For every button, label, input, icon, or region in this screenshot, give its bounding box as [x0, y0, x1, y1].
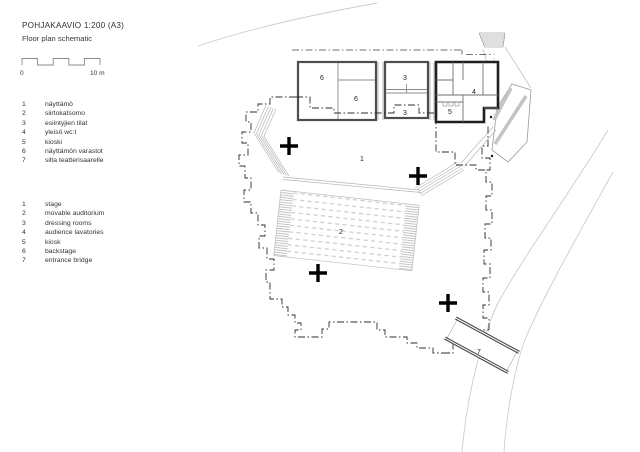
legend-num: 5	[22, 138, 45, 147]
legend-num: 1	[22, 100, 45, 109]
boundary-through-backstage	[296, 97, 389, 113]
roofline	[292, 50, 491, 55]
legend-num: 4	[22, 228, 45, 237]
contour-line	[462, 130, 608, 452]
survey-dot	[490, 116, 492, 118]
room-labels: 6 6 3 3 4 5 1 2 7	[320, 75, 481, 356]
legend-num: 4	[22, 128, 45, 137]
room-label-bridge: 7	[477, 349, 481, 356]
legend-label: näyttämö	[45, 100, 104, 109]
legend-english: 1stage 2movable auditorium 3dressing roo…	[22, 200, 104, 266]
legend-row: 4yleisö wc:t	[22, 128, 104, 137]
stage-plaza	[254, 105, 496, 196]
legend-row: 6näyttämön varastot	[22, 147, 104, 156]
scale-bar: 0 10 m	[20, 59, 105, 78]
legend-label: kiosk	[45, 238, 104, 247]
scale-end-label: 10 m	[90, 70, 105, 77]
legend-row: 7silta teatterisaarelle	[22, 156, 104, 165]
legend-label: audience lavatories	[45, 228, 104, 237]
legend-label: stage	[45, 200, 104, 209]
benchmark-cross	[439, 294, 457, 312]
legend-row: 6backstage	[22, 247, 104, 256]
legend-num: 7	[22, 156, 45, 165]
exterior-stairs	[479, 33, 505, 47]
legend-num: 7	[22, 256, 45, 265]
legend-num: 2	[22, 109, 45, 118]
room-label-backstage-left: 6	[320, 75, 324, 82]
legend-num: 6	[22, 147, 45, 156]
room-label-stage: 1	[360, 156, 364, 163]
dressing-rooms-block	[385, 62, 428, 118]
title-block: POHJAKAAVIO 1:200 (A3) Floor plan schema…	[22, 21, 124, 43]
legend-row: 1stage	[22, 200, 104, 209]
legend-label: kioski	[45, 138, 104, 147]
legend-num: 3	[22, 119, 45, 128]
boundary-east	[482, 126, 492, 330]
legend-num: 6	[22, 247, 45, 256]
room-label-backstage-right: 6	[354, 96, 358, 103]
auditorium-steps-right	[399, 204, 419, 271]
auditorium	[274, 190, 419, 271]
legend-finnish: 1näyttämö 2siirtokatsomo 3esiintyjien ti…	[22, 100, 104, 166]
legend-row: 1näyttämö	[22, 100, 104, 109]
legend-num: 5	[22, 238, 45, 247]
drawing-sheet: POHJAKAAVIO 1:200 (A3) Floor plan schema…	[0, 0, 640, 452]
scale-zero-label: 0	[20, 70, 24, 77]
boundary-bridge-crossing	[443, 330, 489, 353]
legend-num: 3	[22, 219, 45, 228]
boundary-east-inner	[427, 113, 486, 170]
corridor-gap	[378, 62, 383, 120]
legend-row: 2siirtokatsomo	[22, 109, 104, 118]
legend-num: 1	[22, 200, 45, 209]
legend-row: 3dressing rooms	[22, 219, 104, 228]
hillside-path	[483, 47, 531, 118]
survey-dot	[491, 155, 493, 157]
benchmark-cross	[309, 264, 327, 282]
legend-label: näyttämön varastot	[45, 147, 104, 156]
legend-label: siirtokatsomo	[45, 109, 104, 118]
corridor-gap	[430, 62, 434, 120]
room-label-dressing-bottom: 3	[403, 110, 407, 117]
ramp-structure	[490, 84, 531, 162]
room-label-lavatories: 4	[472, 89, 476, 96]
legend-num: 2	[22, 209, 45, 218]
legend-row: 4audience lavatories	[22, 228, 104, 237]
legend-label: dressing rooms	[45, 219, 104, 228]
boundary-west-south	[239, 97, 443, 353]
legend-label: entrance bridge	[45, 256, 104, 265]
room-label-dressing-top: 3	[403, 75, 407, 82]
contour-line	[504, 172, 613, 452]
stairs-fan-left	[254, 105, 289, 176]
entrance-bridge	[444, 317, 519, 373]
benchmark-cross	[280, 137, 298, 155]
room-label-kiosk: 5	[448, 109, 452, 116]
legend-row: 5kioski	[22, 138, 104, 147]
legend-row: 3esiintyjien tilat	[22, 119, 104, 128]
kiosk-lavatories-block	[436, 62, 498, 122]
legend-row: 5kiosk	[22, 238, 104, 247]
benchmark-crosses	[280, 137, 457, 312]
site-boundary	[239, 97, 492, 353]
room-label-auditorium: 2	[339, 229, 343, 236]
legend-row: 2movable auditorium	[22, 209, 104, 218]
legend-label: backstage	[45, 247, 104, 256]
boundary-notch-dressing	[389, 105, 427, 113]
legend-label: movable auditorium	[45, 209, 104, 218]
legend-label: esiintyjien tilat	[45, 119, 104, 128]
backstage-block	[298, 62, 376, 120]
drawing-subtitle: Floor plan schematic	[22, 34, 124, 43]
stairs-fan-right	[415, 162, 464, 196]
legend-row: 7entrance bridge	[22, 256, 104, 265]
drawing-title: POHJAKAAVIO 1:200 (A3)	[22, 21, 124, 30]
auditorium-seating	[287, 191, 407, 269]
terrain-contours	[198, 3, 613, 452]
contour-line	[198, 3, 377, 46]
plaza-edge-right	[461, 127, 496, 166]
plaza-edge-bottom	[283, 177, 421, 193]
auditorium-steps-left	[274, 190, 294, 257]
benchmark-cross	[409, 167, 427, 185]
legend-label: yleisö wc:t	[45, 128, 104, 137]
legend-label: silta teatterisaarelle	[45, 156, 104, 165]
